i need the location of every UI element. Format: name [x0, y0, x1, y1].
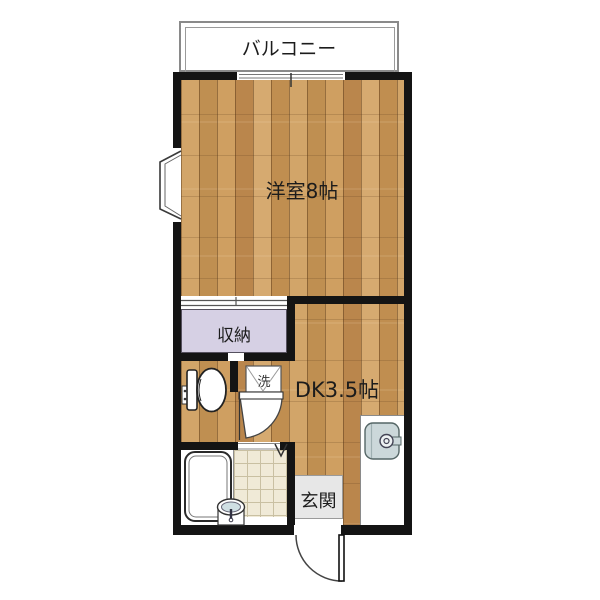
laundry-pan-label: 洗	[250, 371, 278, 390]
kitchen-sink-icon	[365, 423, 401, 459]
fixtures-layer	[0, 0, 600, 600]
western-room-label: 洋室8帖	[222, 175, 382, 204]
entry-door-swing-icon	[296, 535, 344, 581]
sliding-window-icon	[239, 73, 343, 87]
toilet-icon	[182, 369, 226, 412]
sliding-door-icon	[181, 297, 287, 306]
folding-door-icon	[238, 444, 287, 457]
dk-label: DK3.5帖	[277, 374, 397, 404]
floorplan: バルコニー 収納 玄関	[0, 0, 600, 600]
bay-window-icon	[160, 151, 181, 219]
washbasin-icon	[218, 499, 245, 525]
